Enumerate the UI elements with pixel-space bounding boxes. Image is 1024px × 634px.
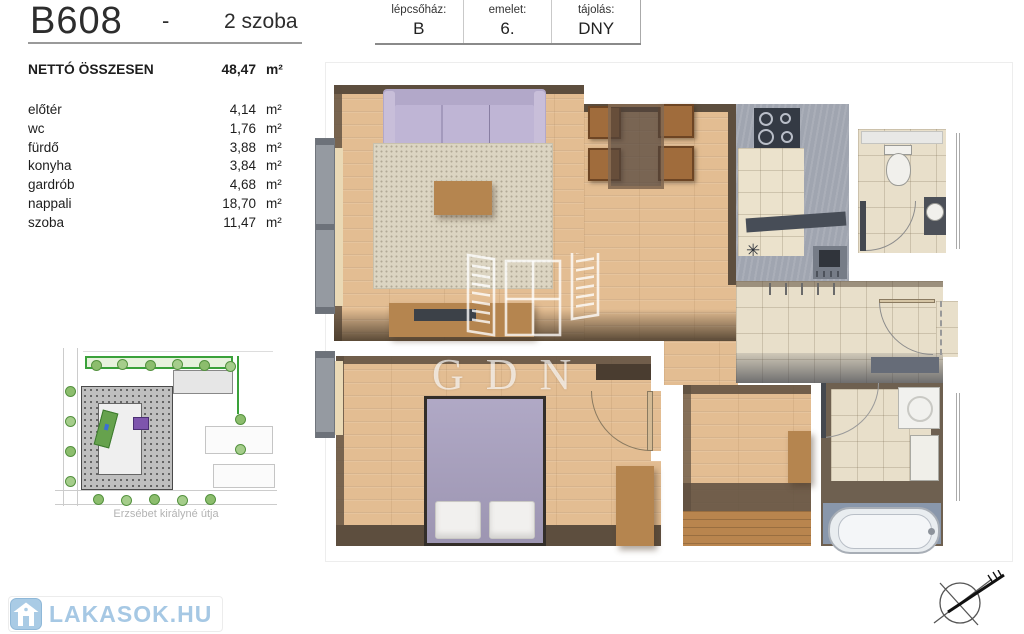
bathtub-faucet [928, 528, 935, 535]
room-name: wc [28, 121, 194, 136]
room-area: 11,47 [194, 215, 256, 230]
road-line [83, 351, 273, 352]
room-area: 1,76 [194, 121, 256, 136]
title-separator: - [162, 8, 169, 34]
dresser [616, 466, 654, 546]
room-name: szoba [28, 215, 194, 230]
entrance-door-frame [940, 301, 942, 355]
site-plan: Erzsébet királyné útja [55, 348, 277, 526]
washing-machine-drum [907, 396, 933, 422]
tree [199, 360, 210, 371]
tree [145, 360, 156, 371]
room-area: 3,88 [194, 140, 256, 155]
road-line [55, 490, 277, 491]
road-line [55, 504, 277, 505]
appliance-vents [816, 271, 844, 277]
room-unit: m² [256, 158, 290, 173]
appliance-door [819, 250, 840, 267]
sofa-armrest [384, 91, 395, 149]
total-value: 48,47 [194, 62, 256, 77]
window [956, 133, 960, 249]
balcony-railing [315, 351, 335, 438]
kitchen-counter [738, 148, 804, 256]
wc-shelf [861, 131, 943, 144]
burner [780, 113, 791, 124]
tree [65, 476, 76, 487]
sofa-armrest [534, 91, 545, 149]
info-table: lépcsőház: B emelet: 6. tájolás: DNY [375, 0, 641, 45]
room-name: nappali [28, 196, 194, 211]
washing-machine [898, 387, 940, 429]
sofa [383, 89, 546, 151]
wall-shadow [683, 483, 811, 511]
green-border [237, 356, 239, 414]
rug [373, 143, 553, 289]
room-name: gardrób [28, 177, 194, 192]
burner [758, 129, 774, 145]
tree [235, 414, 246, 425]
cooktop [754, 108, 800, 148]
neighbor-building [213, 464, 275, 488]
highlighted-unit [133, 417, 149, 430]
tree [91, 360, 102, 371]
tree [93, 494, 104, 505]
balcony-railing [315, 138, 335, 314]
bedroom-door-leaf [647, 391, 653, 451]
info-cell-floor: emelet: 6. [464, 0, 553, 43]
building-outline [81, 386, 173, 490]
area-row-konyha: konyha 3,84 m² [28, 158, 290, 177]
orientation-value: DNY [552, 19, 640, 39]
railing-bar [316, 307, 334, 313]
entrance-door-leaf [879, 299, 935, 303]
info-cell-staircase: lépcsőház: B [375, 0, 464, 43]
road-line [63, 348, 64, 506]
tree [235, 444, 246, 455]
total-unit: m² [256, 62, 290, 77]
room-name: konyha [28, 158, 194, 173]
room-area: 4,14 [194, 102, 256, 117]
area-row-gardrob: gardrób 4,68 m² [28, 177, 290, 196]
floor-value: 6. [464, 19, 552, 39]
room-unit: m² [256, 196, 290, 211]
neighbor-building [173, 370, 233, 394]
wall-segment [651, 451, 663, 461]
window [956, 393, 960, 501]
area-total-row: NETTÓ ÖSSZESEN 48,47 m² [28, 62, 290, 84]
railing-bar [316, 352, 334, 358]
floor-plan-page: B608 - 2 szoba lépcsőház: B emelet: 6. t… [0, 0, 1024, 634]
room-name: fürdő [28, 140, 194, 155]
bed [424, 396, 546, 546]
tree [149, 494, 160, 505]
info-cell-orientation: tájolás: DNY [552, 0, 641, 43]
railing-bar [316, 432, 334, 438]
burner [781, 131, 793, 143]
area-table: NETTÓ ÖSSZESEN 48,47 m² előtér 4,14 m² w… [28, 62, 290, 234]
area-room-rows: előtér 4,14 m² wc 1,76 m² fürdő 3,88 m² … [28, 102, 290, 234]
room-unit: m² [256, 215, 290, 230]
toilet [886, 153, 911, 186]
area-row-szoba: szoba 11,47 m² [28, 215, 290, 234]
staircase-label: lépcsőház: [375, 4, 463, 16]
room-area: 18,70 [194, 196, 256, 211]
title-rule [28, 42, 302, 44]
tree [205, 494, 216, 505]
bedroom-window-sill [334, 361, 343, 435]
room-unit: m² [256, 102, 290, 117]
radiator [769, 283, 841, 295]
staircase-value: B [375, 19, 463, 39]
wardrobe-side-cabinet [788, 431, 811, 483]
pillow [435, 501, 481, 539]
road-line [77, 348, 78, 506]
refrigerator [813, 246, 847, 279]
kitchen-sink-symbol: ✳ [746, 241, 760, 261]
logo-text: LAKASOK.HU [49, 601, 212, 628]
wall-shadow [683, 385, 811, 394]
area-row-nappali: nappali 18,70 m² [28, 196, 290, 215]
room-unit: m² [256, 121, 290, 136]
bedroom-shelf [596, 364, 658, 380]
coffee-table [434, 181, 492, 215]
bathroom-door-leaf [821, 383, 826, 438]
railing-bar [316, 139, 334, 145]
green-area [85, 356, 233, 369]
pillow [489, 501, 535, 539]
tree [117, 359, 128, 370]
tv [414, 309, 476, 321]
courtyard-pool [104, 424, 109, 431]
compass-icon [930, 570, 1014, 630]
burner [759, 112, 773, 126]
living-window-sill [334, 148, 343, 306]
site-logo: LAKASOK.HU [8, 596, 223, 632]
tree [65, 446, 76, 457]
tree [177, 495, 188, 506]
tree [65, 416, 76, 427]
room-area: 3,84 [194, 158, 256, 173]
wardrobe-cabinet [683, 511, 811, 546]
tree [225, 361, 236, 372]
room-unit: m² [256, 140, 290, 155]
tree [172, 359, 183, 370]
corridor [664, 341, 738, 385]
floor-plan: ✳ [325, 62, 1013, 562]
house-icon [10, 598, 42, 630]
bathtub [828, 507, 940, 554]
bathtub-inner [838, 514, 932, 549]
wall-shadow [336, 356, 661, 364]
tree [121, 495, 132, 506]
area-row-furdo: fürdő 3,88 m² [28, 140, 290, 159]
wc-sink [926, 203, 944, 221]
tree [65, 386, 76, 397]
room-area: 4,68 [194, 177, 256, 192]
unit-code: B608 [30, 0, 123, 43]
floor-label: emelet: [464, 4, 552, 16]
street-label: Erzsébet királyné útja [55, 508, 277, 520]
washbasin [910, 435, 939, 481]
area-row-eloter: előtér 4,14 m² [28, 102, 290, 121]
wall-segment [651, 341, 663, 391]
dining-table [608, 104, 664, 189]
room-name: előtér [28, 102, 194, 117]
area-row-wc: wc 1,76 m² [28, 121, 290, 140]
room-count: 2 szoba [224, 10, 298, 34]
doormat [871, 357, 939, 373]
orientation-label: tájolás: [552, 4, 640, 16]
railing-bar [316, 224, 334, 230]
room-unit: m² [256, 177, 290, 192]
total-label: NETTÓ ÖSSZESEN [28, 62, 194, 77]
